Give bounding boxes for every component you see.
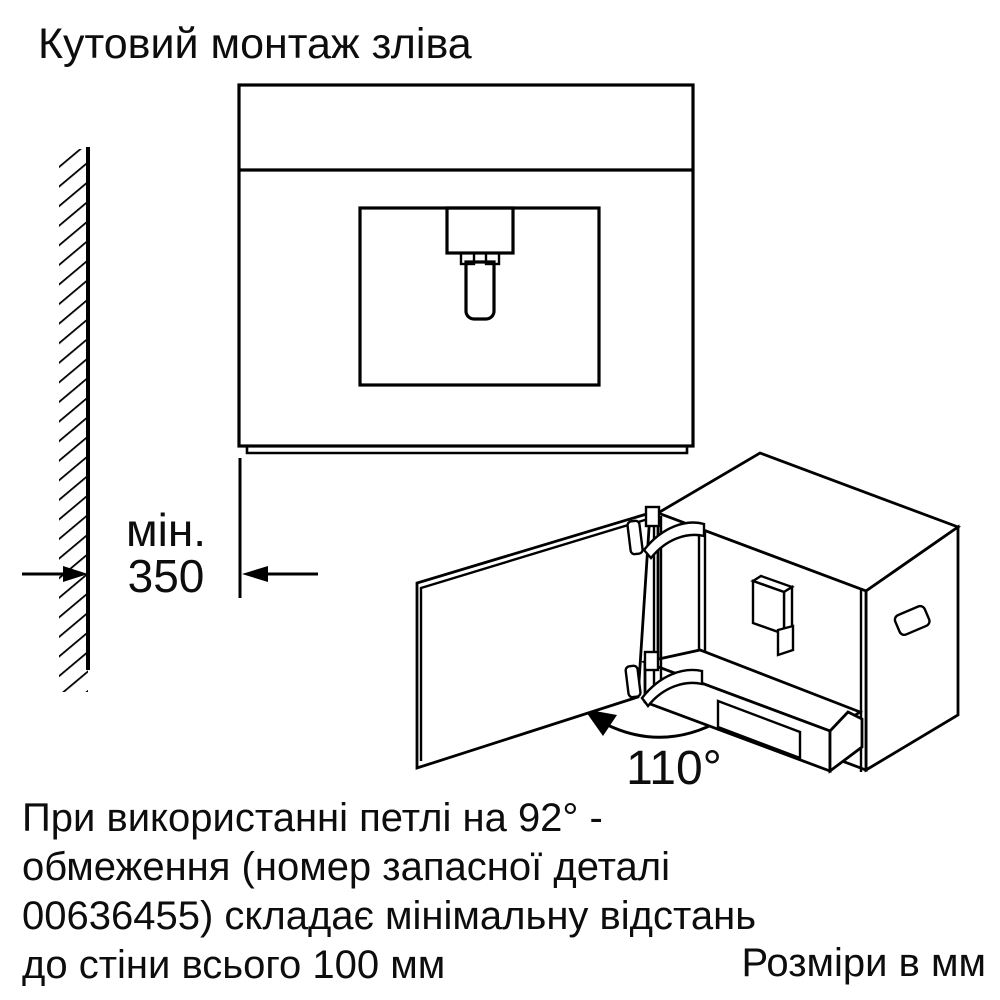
installation-diagram-page: { "title": "Кутовий монтаж зліва", "wall… (0, 0, 1000, 1000)
footer-note-line-3: 00636455) складає мінімальну відстань (22, 892, 756, 941)
dispenser-3d-spout (778, 626, 793, 655)
front-niche-panel (360, 208, 599, 385)
units-note: Розміри в мм (741, 941, 986, 986)
dimension-arrow-right-head (242, 566, 268, 582)
footer-note: При використанні петлі на 92° - обмеженн… (22, 794, 756, 990)
wall-hatch-pattern (59, 149, 88, 692)
footer-note-line-4: до стіни всього 100 мм (22, 941, 756, 990)
appliance-3d-view (417, 453, 958, 772)
bottom-hinge-tab (625, 665, 641, 697)
footer-note-line-1: При використанні петлі на 92° - (22, 794, 756, 843)
footer-note-line-2: обмеження (номер запасної деталі (22, 843, 756, 892)
appliance-front-view (239, 85, 693, 453)
dimension-value-label: 350 (110, 549, 222, 603)
open-door-panel (417, 513, 661, 768)
diagram-title: Кутовий монтаж зліва (38, 20, 472, 69)
dispenser-spout (466, 262, 494, 319)
door-angle-label: 110° (606, 741, 742, 796)
top-hinge-tab (627, 520, 643, 554)
top-hinge-notch (646, 507, 659, 526)
dispenser-housing (447, 208, 513, 253)
wall-section-drawing (59, 147, 88, 692)
bottom-hinge-notch (645, 652, 658, 670)
